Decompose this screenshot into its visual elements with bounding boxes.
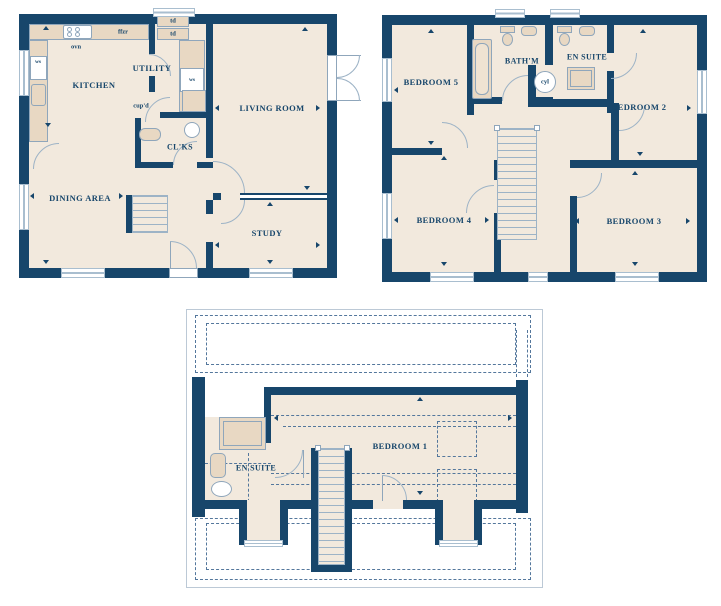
basin: [521, 26, 537, 36]
window: [244, 540, 283, 547]
marker-arrow: [45, 123, 51, 127]
marker-arrow: [43, 260, 49, 264]
wall: [482, 500, 516, 509]
marker-arrow: [267, 260, 273, 264]
marker-arrow: [215, 242, 219, 248]
sink-label: ws: [35, 59, 41, 65]
marker-arrow: [417, 397, 423, 401]
window: [382, 193, 392, 239]
toilet-cistern: [557, 26, 572, 33]
marker-arrow: [43, 26, 49, 30]
toilet: [211, 481, 232, 497]
wall: [352, 500, 373, 509]
wall: [135, 118, 141, 162]
floor-plan-sheet: ovn ffzr td td ws ws: [0, 0, 721, 606]
dormer-floor: [443, 500, 474, 540]
wall: [403, 500, 435, 509]
wall: [206, 24, 213, 158]
shower-tray: [223, 421, 262, 446]
window: [153, 8, 195, 17]
room-label-bedroom-2: BEDROOM 2: [612, 102, 667, 112]
worktop: [182, 90, 206, 112]
wall: [213, 193, 221, 200]
dormer-floor: [247, 500, 280, 540]
marker-arrow: [632, 171, 638, 175]
room-label-utility: UTILITY: [133, 63, 172, 73]
room-label-cloakroom: CL'KS: [167, 143, 193, 152]
window: [495, 9, 525, 18]
window: [697, 70, 707, 114]
basin: [210, 453, 226, 478]
newel-post: [344, 445, 350, 451]
marker-arrow: [575, 218, 579, 224]
window: [19, 50, 29, 96]
door-leaf: [303, 450, 304, 478]
cylinder-label: cyl: [541, 79, 549, 86]
wardrobe-outline: [437, 421, 477, 457]
marker-arrow: [304, 186, 310, 190]
ceiling-line: [248, 453, 249, 507]
newel-post: [315, 445, 321, 451]
wall: [345, 448, 352, 572]
marker-arrow: [394, 217, 398, 223]
wall: [135, 162, 173, 168]
fridge-freezer-label: ffzr: [118, 29, 128, 36]
first-floor-plan: cyl BEDROOM: [382, 15, 707, 282]
toilet: [184, 122, 200, 138]
marker-arrow: [441, 156, 447, 160]
toilet: [559, 33, 570, 46]
shower-tray: [570, 70, 592, 87]
wall: [192, 377, 205, 517]
roof-line: [516, 330, 517, 377]
wall: [528, 97, 553, 104]
marker-arrow: [632, 262, 638, 266]
sink-label: ws: [189, 77, 195, 83]
roof-line: [206, 323, 516, 365]
wall: [149, 24, 155, 54]
wall: [474, 500, 482, 545]
basin: [579, 26, 595, 36]
second-floor-plan: BEDROOM 1 EN SUITE: [186, 309, 543, 588]
wall: [264, 387, 516, 395]
toilet: [502, 33, 513, 46]
window: [430, 272, 474, 282]
ceiling-line: [283, 426, 516, 427]
staircase: [132, 195, 168, 233]
wall: [206, 200, 213, 214]
marker-arrow: [30, 193, 34, 199]
newel-post: [534, 125, 540, 131]
window: [439, 540, 478, 547]
window: [61, 268, 105, 278]
wall: [288, 500, 311, 509]
marker-arrow: [687, 105, 691, 111]
newel-post: [494, 125, 500, 131]
marker-arrow: [215, 105, 219, 111]
marker-arrow: [316, 105, 320, 111]
marker-arrow: [640, 29, 646, 33]
wall: [311, 565, 352, 572]
marker-arrow: [508, 415, 512, 421]
room-label-bathroom: BATH'M: [505, 57, 539, 66]
hob-burner: [75, 32, 80, 37]
wall: [545, 25, 553, 65]
french-door-opening: [327, 55, 337, 101]
marker-arrow: [267, 202, 273, 206]
marker-arrow: [686, 218, 690, 224]
marker-arrow: [316, 242, 320, 248]
marker-arrow: [274, 415, 278, 421]
marker-arrow: [485, 217, 489, 223]
window: [528, 272, 548, 282]
room-label-kitchen: KITCHEN: [73, 80, 116, 90]
front-door-opening: [169, 268, 198, 278]
window: [550, 9, 580, 18]
roof-line: [527, 330, 528, 377]
bathtub-inner: [475, 43, 489, 95]
ground-floor-plan: ovn ffzr td td ws ws: [19, 14, 337, 278]
toilet-cistern: [500, 26, 515, 33]
wall: [570, 196, 577, 272]
oven-label: ovn: [71, 44, 81, 51]
room-label-bedroom-1: BEDROOM 1: [373, 441, 428, 451]
window: [19, 184, 29, 230]
window: [615, 272, 659, 282]
dryer-label: td: [170, 18, 176, 25]
dryer-label: td: [170, 31, 176, 38]
cupboard-label: cup'd: [133, 103, 149, 110]
staircase: [318, 448, 345, 565]
wall: [392, 148, 442, 155]
wall: [206, 242, 213, 268]
basin: [139, 128, 161, 141]
marker-arrow: [428, 29, 434, 33]
ceiling-line: [271, 473, 516, 474]
marker-arrow: [428, 141, 434, 145]
room-label-en-suite: EN SUITE: [567, 53, 607, 62]
room-label-dining-area: DINING AREA: [49, 193, 111, 203]
wall: [570, 160, 697, 168]
wall: [611, 103, 619, 163]
marker-arrow: [119, 193, 123, 199]
marker-arrow: [417, 491, 423, 495]
staircase: [497, 128, 537, 240]
window: [249, 268, 293, 278]
window: [382, 58, 392, 102]
wall: [280, 500, 288, 545]
wall: [205, 500, 239, 509]
wall: [311, 448, 318, 572]
room-label-living-room: LIVING ROOM: [239, 103, 304, 113]
room-label-study: STUDY: [252, 228, 283, 238]
marker-arrow: [394, 87, 398, 93]
wall: [240, 193, 327, 200]
wall: [607, 25, 614, 53]
room-label-bedroom-4: BEDROOM 4: [417, 215, 472, 225]
room-label-bedroom-5: BEDROOM 5: [404, 77, 459, 87]
appliance: [31, 84, 46, 106]
marker-arrow: [637, 152, 643, 156]
marker-arrow: [441, 262, 447, 266]
wall: [435, 500, 443, 545]
wall: [239, 500, 247, 545]
wall: [149, 76, 155, 92]
wall: [516, 380, 528, 513]
marker-arrow: [302, 27, 308, 31]
ceiling-line: [271, 415, 516, 416]
wall: [197, 162, 213, 168]
room-label-en-suite: EN SUITE: [236, 464, 276, 473]
hob-burner: [67, 32, 72, 37]
room-label-bedroom-3: BEDROOM 3: [607, 216, 662, 226]
